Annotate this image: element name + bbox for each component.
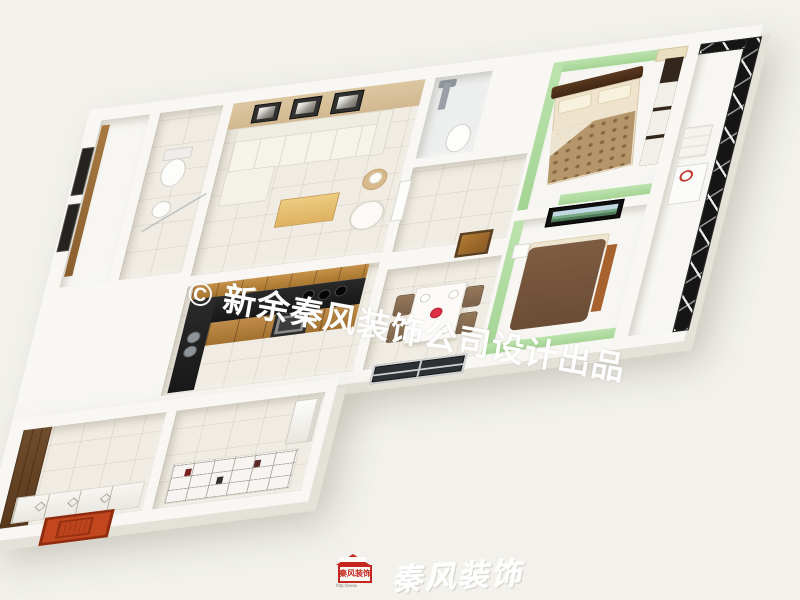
logo-url-text: http://www.: [336, 583, 372, 588]
roof-icon: [336, 554, 370, 565]
logo-text: 秦风装饰: [339, 570, 371, 578]
logo-frame: 秦风装饰: [338, 565, 372, 583]
apartment-3d-plan: [0, 24, 763, 543]
floorplan-render: © 新余秦风装饰公司设计出品 秦风装饰 http://www. 秦风装饰: [0, 0, 800, 600]
brand-logo: 秦风装饰 http://www. 秦风装饰: [334, 552, 524, 596]
sink-icon: [150, 200, 174, 219]
toilet-icon: [442, 122, 474, 153]
shelving-icon: [677, 124, 713, 159]
sofa-icon: [218, 166, 276, 207]
house-logo-icon: 秦风装饰 http://www.: [334, 552, 374, 592]
tub-chair-icon: [346, 198, 388, 232]
toilet-icon: [157, 157, 189, 188]
washing-machine-icon: [667, 162, 709, 205]
calligraphy-text: 秦风装饰: [391, 549, 525, 600]
coffee-table-icon: [274, 192, 340, 228]
